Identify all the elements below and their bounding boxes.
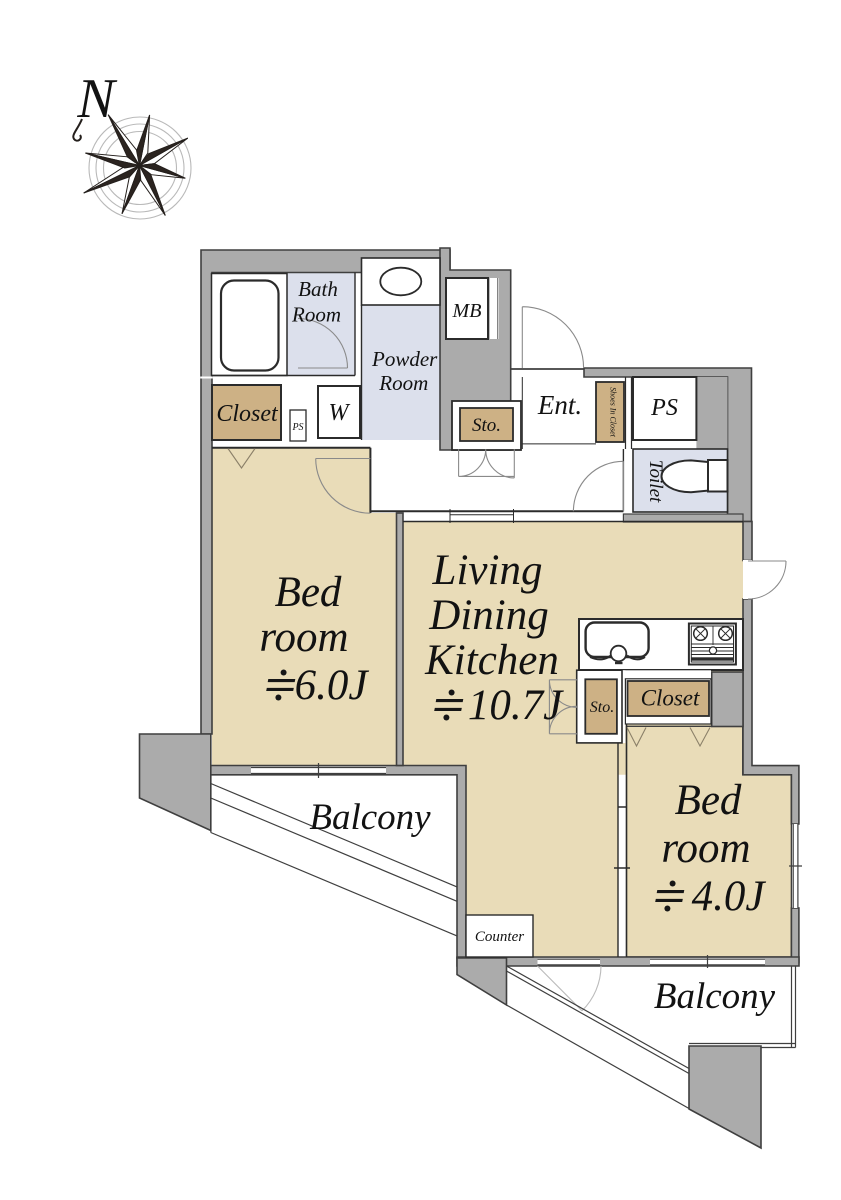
svg-text:Balcony: Balcony	[654, 976, 776, 1017]
svg-text:Bath: Bath	[298, 277, 338, 301]
svg-text:N: N	[76, 68, 117, 130]
svg-text:Sto.: Sto.	[590, 699, 614, 716]
svg-text:Ent.: Ent.	[537, 390, 582, 420]
svg-text:PS: PS	[291, 422, 303, 433]
svg-text:W: W	[329, 400, 351, 426]
svg-text:Shoes In Closet: Shoes In Closet	[609, 387, 618, 438]
svg-text:Closet: Closet	[641, 686, 700, 711]
svg-text:Kitchen: Kitchen	[424, 637, 559, 684]
svg-text:Room: Room	[291, 303, 341, 327]
svg-text:Bed: Bed	[275, 569, 342, 616]
svg-text:Balcony: Balcony	[309, 797, 431, 838]
svg-text:Living: Living	[432, 547, 543, 594]
svg-text:Powder: Powder	[371, 347, 438, 371]
svg-text:Counter: Counter	[475, 929, 524, 945]
svg-text:4.0J: 4.0J	[692, 873, 767, 920]
svg-text:room: room	[259, 614, 348, 661]
svg-text:Bed: Bed	[675, 777, 742, 824]
svg-text:Dining: Dining	[428, 592, 548, 639]
svg-text:Sto.: Sto.	[472, 415, 501, 436]
svg-text:Room: Room	[378, 371, 428, 395]
svg-text:Toilet: Toilet	[645, 460, 666, 503]
svg-text:Closet: Closet	[216, 401, 279, 427]
svg-text:10.7J: 10.7J	[468, 682, 564, 729]
svg-text:MB: MB	[452, 300, 482, 322]
svg-text:6.0J: 6.0J	[295, 662, 370, 709]
svg-text:PS: PS	[650, 395, 678, 421]
svg-text:room: room	[661, 825, 750, 872]
